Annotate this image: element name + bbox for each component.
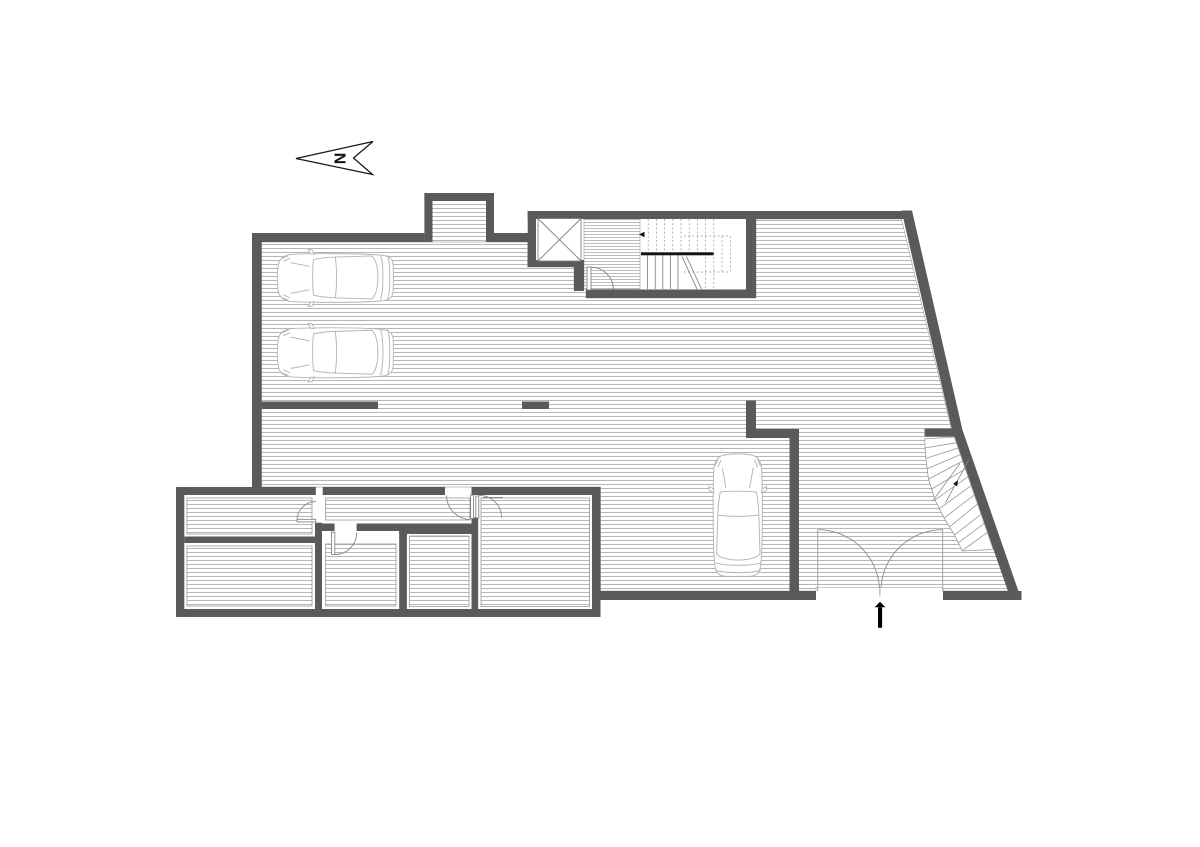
svg-text:N: N	[333, 153, 350, 165]
